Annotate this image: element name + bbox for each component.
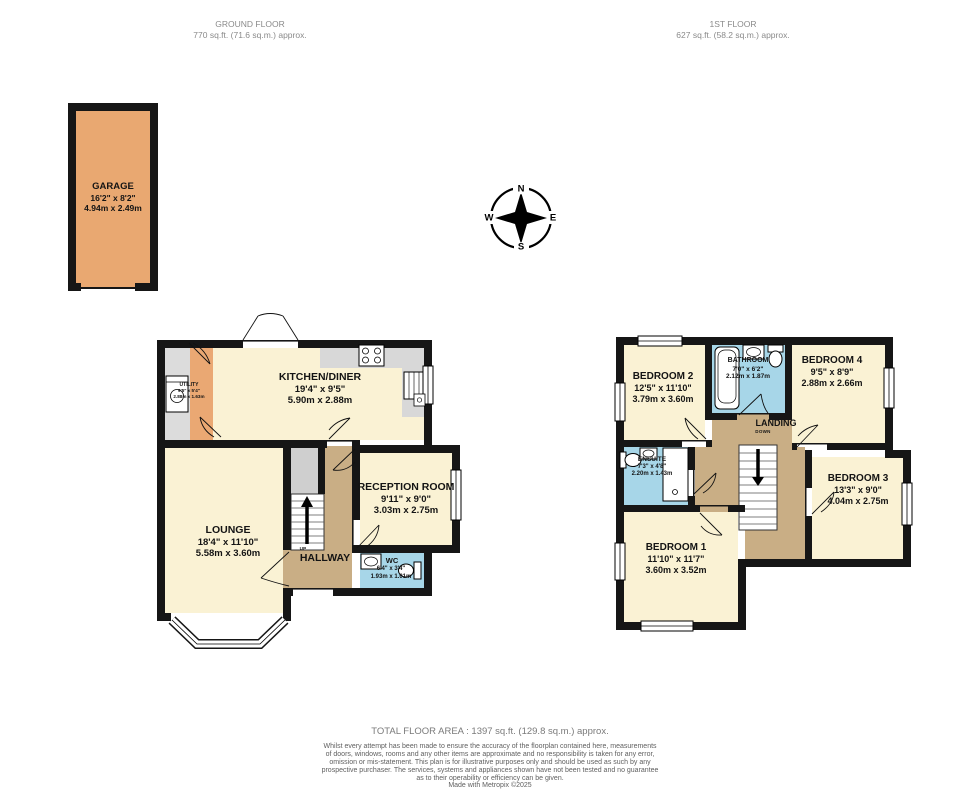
room-size-metric: 1.93m x 1.01m: [371, 574, 412, 582]
disclaimer-line: of doors, windows, rooms and any other i…: [322, 751, 659, 759]
disclaimer-line: omission or mis-statement. This plan is …: [322, 759, 659, 767]
landing-label: LANDING: [756, 418, 797, 429]
total-floor-area: TOTAL FLOOR AREA : 1397 sq.ft. (129.8 sq…: [371, 726, 608, 737]
kitchen-diner-label: KITCHEN/DINER 19'4" x 9'5" 5.90m x 2.88m: [279, 371, 361, 407]
bedroom-3-label: BEDROOM 3 13'3" x 9'0" 4.04m x 2.75m: [827, 473, 888, 507]
room-name: BEDROOM 2: [632, 371, 693, 383]
wc-size-label: 6'4" x 3'4" 1.93m x 1.01m: [371, 566, 412, 581]
room-size-metric: 5.90m x 2.88m: [279, 395, 361, 407]
hallway-label: HALLWAY: [300, 552, 350, 565]
disclaimer-line: prospective purchaser. The services, sys…: [322, 767, 659, 775]
room-name: LOUNGE: [196, 524, 260, 537]
bedroom-1-label: BEDROOM 1 11'10" x 11'7" 3.60m x 3.52m: [645, 542, 706, 576]
room-name: BATHROOM: [726, 357, 770, 366]
first-floor-header: 1ST FLOOR 627 sq.ft. (58.2 sq.m.) approx…: [676, 19, 789, 42]
room-size-metric: 4.04m x 2.75m: [827, 496, 888, 507]
room-size-metric: 5.58m x 3.60m: [196, 548, 260, 560]
bathroom-toilet-icon: [768, 345, 783, 367]
room-size-imperial: 7'3" x 4'8": [632, 464, 673, 471]
room-size-metric: 2.88m x 1.63m: [173, 394, 204, 400]
room-name: BEDROOM 4: [801, 355, 862, 367]
ground-floor-header: GROUND FLOOR 770 sq.ft. (71.6 sq.m.) app…: [193, 19, 306, 42]
room-size-metric: 2.12m x 1.87m: [726, 373, 770, 381]
room-size-metric: 2.88m x 2.66m: [801, 378, 862, 389]
stairs-down: [739, 445, 777, 530]
ground-floor-area: 770 sq.ft. (71.6 sq.m.) approx.: [193, 30, 306, 41]
bedroom-4-label: BEDROOM 4 9'5" x 8'9" 2.88m x 2.66m: [801, 355, 862, 389]
room-size-imperial: 9'5" x 5'4": [173, 388, 204, 394]
compass-south-label: S: [517, 242, 525, 252]
room-size-imperial: 7'0" x 6'2": [726, 366, 770, 374]
compass-west-label: W: [484, 213, 495, 223]
room-size-imperial: 19'4" x 9'5": [279, 384, 361, 396]
reception-room-label: RECEPTION ROOM 9'11" x 9'0" 3.03m x 2.75…: [358, 481, 455, 517]
room-size-imperial: 11'10" x 11'7": [645, 554, 706, 565]
room-name: ENSUITE: [632, 456, 673, 464]
floorplan-drawing: [0, 0, 980, 791]
room-size-metric: 3.79m x 3.60m: [632, 394, 693, 405]
stairs-up: [291, 494, 324, 550]
room-size-imperial: 9'5" x 8'9": [801, 367, 862, 378]
lounge-label: LOUNGE 18'4" x 11'10" 5.58m x 3.60m: [196, 524, 260, 560]
room-name: GARAGE: [84, 181, 142, 193]
room-size-metric: 3.60m x 3.52m: [645, 565, 706, 576]
bathroom-label: BATHROOM 7'0" x 6'2" 2.12m x 1.87m: [726, 357, 770, 381]
room-size-metric: 4.94m x 2.49m: [84, 203, 142, 213]
ground-floor-title: GROUND FLOOR: [193, 19, 306, 30]
stairs-down-label: DOWN: [755, 429, 770, 434]
room-size-imperial: 18'4" x 11'10": [196, 537, 260, 549]
room-size-imperial: 13'3" x 9'0": [827, 485, 888, 496]
utility-label: UTILITY 9'5" x 5'4" 2.88m x 1.63m: [173, 382, 204, 399]
bay-window: [172, 620, 285, 644]
wc-label: WC: [386, 556, 399, 565]
room-size-imperial: 12'5" x 11'10": [632, 383, 693, 394]
credit-text: Made with Metropix ©2025: [448, 782, 531, 789]
room-size-imperial: 16'2" x 8'2": [84, 193, 142, 203]
first-floor-title: 1ST FLOOR: [676, 19, 789, 30]
first-floor-area: 627 sq.ft. (58.2 sq.m.) approx.: [676, 30, 789, 41]
ensuite-label: ENSUITE 7'3" x 4'8" 2.20m x 1.43m: [632, 456, 673, 479]
compass-east-label: E: [549, 213, 557, 223]
floorplan-page: GROUND FLOOR 770 sq.ft. (71.6 sq.m.) app…: [0, 0, 980, 791]
room-name: BEDROOM 3: [827, 473, 888, 485]
compass-north-label: N: [517, 184, 526, 194]
room-size-imperial: 6'4" x 3'4": [371, 566, 412, 574]
stairs-up-label: UP: [300, 546, 307, 551]
room-size-metric: 2.20m x 1.43m: [632, 471, 673, 478]
disclaimer-text: Whilst every attempt has been made to en…: [322, 743, 659, 783]
room-size-imperial: 9'11" x 9'0": [358, 494, 455, 506]
disclaimer-line: Whilst every attempt has been made to en…: [322, 743, 659, 751]
room-name: KITCHEN/DINER: [279, 371, 361, 384]
room-size-metric: 3.03m x 2.75m: [358, 505, 455, 517]
stove-icon: [359, 345, 384, 366]
bedroom-2-label: BEDROOM 2 12'5" x 11'10" 3.79m x 3.60m: [632, 371, 693, 405]
ground-floor-plan: [157, 314, 461, 645]
room-name: BEDROOM 1: [645, 542, 706, 554]
garage-label: GARAGE 16'2" x 8'2" 4.94m x 2.49m: [84, 181, 142, 213]
room-name: RECEPTION ROOM: [358, 481, 455, 494]
